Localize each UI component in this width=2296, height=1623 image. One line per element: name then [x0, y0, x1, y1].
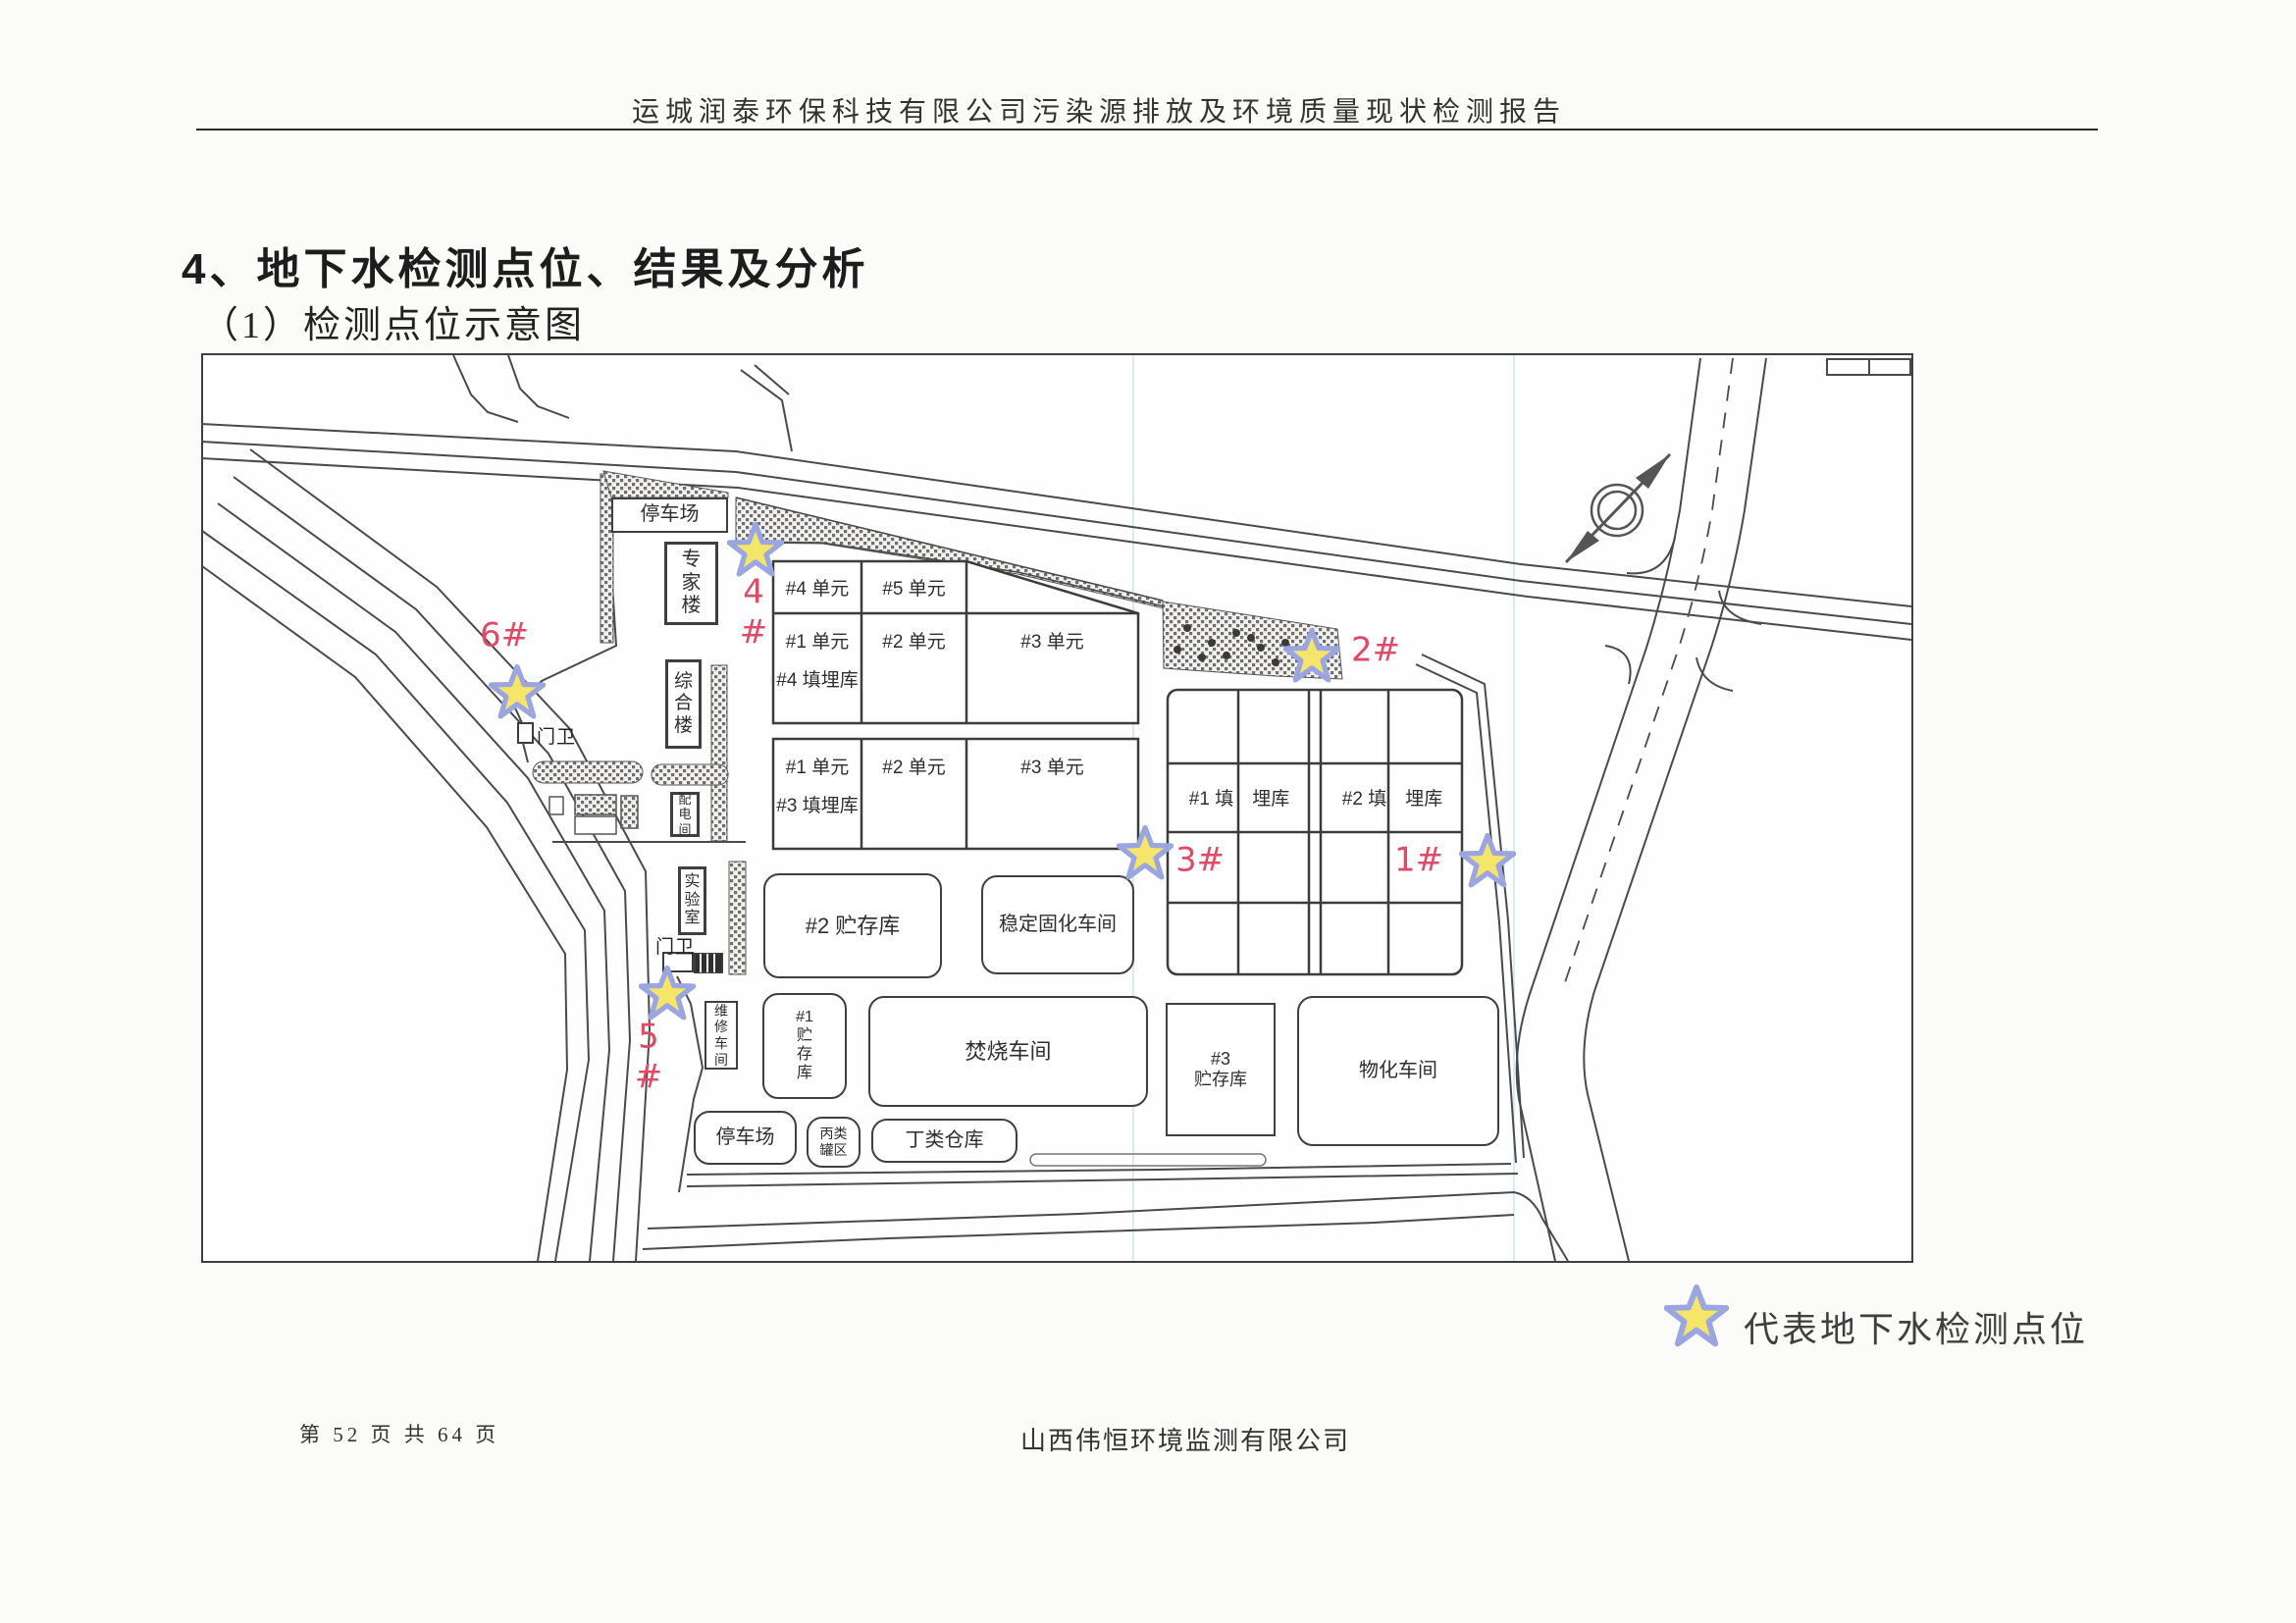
building-power-room: 配电间	[670, 792, 700, 837]
landfill-cell: #2 单元	[861, 739, 966, 849]
landfill-cell: #4 单元	[773, 561, 861, 613]
building-laboratory: 实验室	[678, 866, 706, 935]
landfill-cell: #2 单元	[861, 613, 966, 723]
building-class-c-tank-area: 丙类罐区	[807, 1117, 861, 1168]
monitoring-point-label-5#: 5#	[635, 1018, 663, 1099]
monitoring-star-2#	[1283, 627, 1340, 684]
landfill-cell: #1 单元#4 填埋库	[773, 613, 861, 723]
monitoring-star-6#	[489, 663, 546, 720]
building-solidification-workshop: 稳定固化车间	[981, 875, 1134, 974]
gatehouse-label: 门卫	[655, 932, 695, 959]
building-storage-3: #3贮存库	[1166, 1003, 1276, 1136]
landfill-cell: #1 填 埋库	[1170, 777, 1309, 816]
building-parking-top: 停车场	[611, 497, 728, 533]
monitoring-star-1#	[1459, 832, 1516, 889]
building-incineration-workshop: 焚烧车间	[868, 996, 1148, 1107]
legend-star-icon	[1664, 1283, 1729, 1348]
building-storage-2: #2 贮存库	[763, 873, 942, 978]
building-storage-1: #1贮存库	[762, 993, 847, 1099]
building-class-d-warehouse: 丁类仓库	[871, 1119, 1018, 1163]
landfill-cell: #1 单元#3 填埋库	[773, 739, 861, 849]
building-maintenance-shop: 维修车间	[704, 1001, 738, 1070]
landfill-cell: #3 单元	[966, 613, 1138, 723]
monitoring-star-4#	[727, 521, 784, 578]
monitoring-point-label-1#: 1#	[1394, 840, 1443, 880]
monitoring-point-label-6#: 6#	[480, 615, 529, 655]
building-physchem-workshop: 物化车间	[1297, 996, 1499, 1146]
monitoring-star-5#	[639, 965, 696, 1021]
monitoring-point-label-3#: 3#	[1175, 840, 1225, 880]
gatehouse-label: 门卫	[537, 722, 576, 749]
landfill-cell: #2 填 埋库	[1323, 777, 1462, 816]
site-plan-content: 停车场专家楼综合楼配电间实验室维修车间#1贮存库#2 贮存库稳定固化车间焚烧车间…	[0, 0, 2296, 1623]
monitoring-point-label-2#: 2#	[1351, 630, 1400, 670]
monitoring-star-3#	[1117, 824, 1174, 881]
landfill-cell: #3 单元	[966, 739, 1138, 849]
building-complex-building: 综合楼	[665, 659, 702, 749]
landfill-cell: #5 单元	[861, 561, 966, 613]
building-parking-bottom: 停车场	[694, 1111, 797, 1165]
monitoring-point-label-4#: 4#	[740, 573, 768, 654]
legend-label: 代表地下水检测点位	[1744, 1301, 2088, 1352]
building-expert-building: 专家楼	[664, 542, 718, 625]
